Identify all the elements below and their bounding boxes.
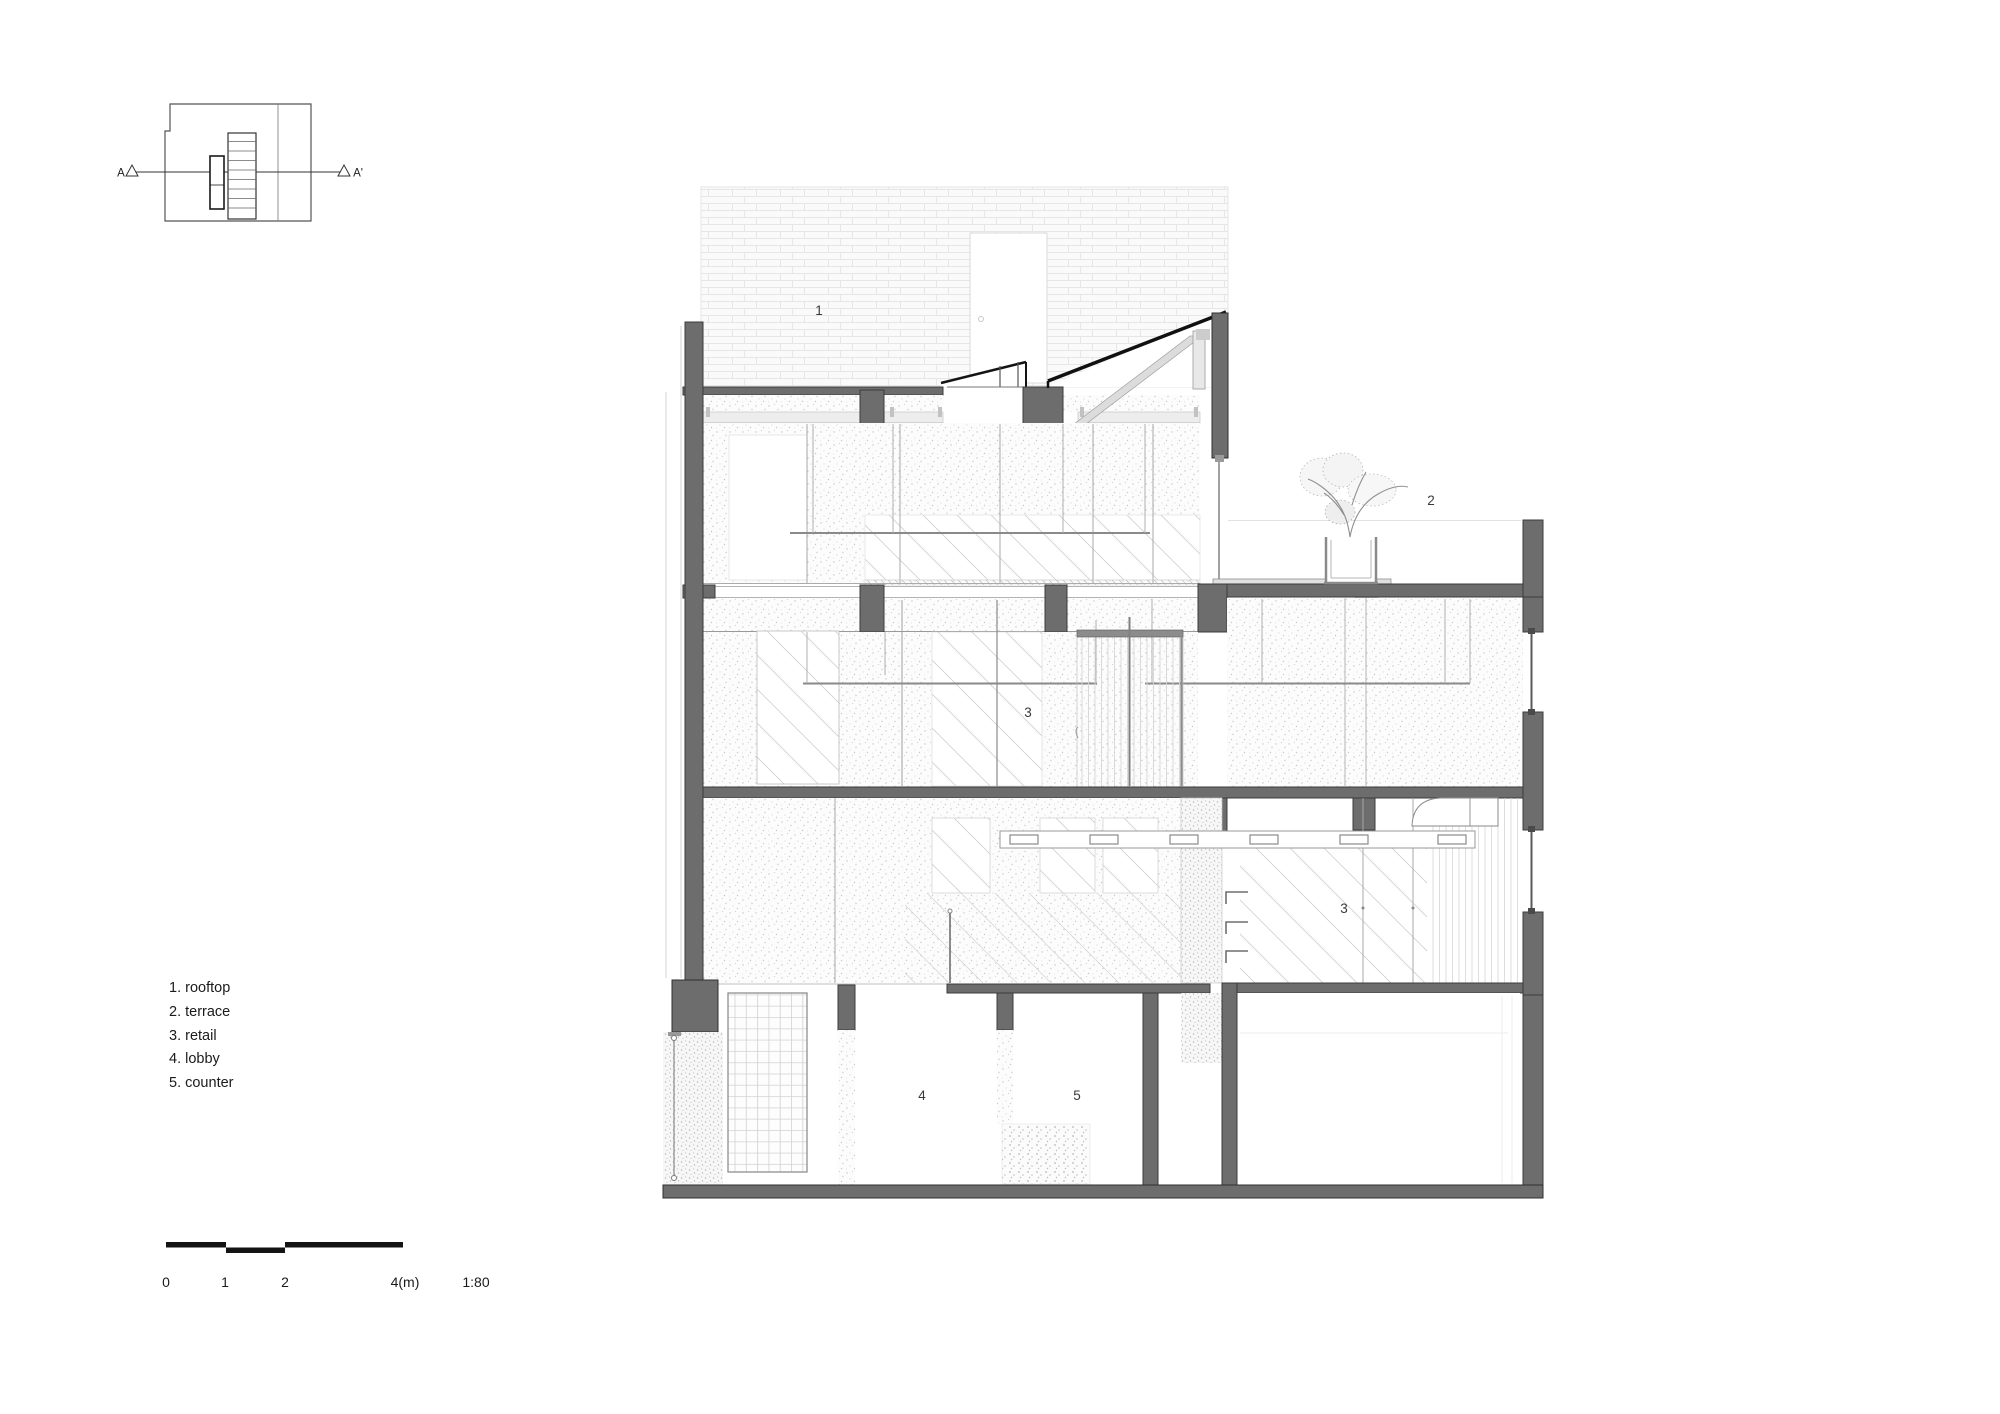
label-counter: 5: [1073, 1088, 1081, 1103]
upper-level: [703, 423, 1200, 585]
ground-slab: [663, 1185, 1543, 1198]
legend-item-lobby: 4. lobby: [169, 1051, 221, 1067]
glass-showcase: [757, 631, 839, 784]
tiled-wall: [728, 993, 807, 1172]
clerestory-band: [683, 585, 1198, 632]
light-fixture-icon: [1170, 835, 1198, 844]
light-fixture-icon: [1438, 835, 1466, 844]
legend-item-terrace: 2. terrace: [169, 1004, 230, 1020]
light-fixture-icon: [1090, 835, 1118, 844]
label-rooftop: 1: [815, 303, 823, 318]
striped-door: [1076, 617, 1183, 787]
ground-level: 4 5: [728, 985, 1222, 1185]
lower-level: 3: [703, 798, 1523, 983]
planter: [1324, 537, 1378, 583]
scale-tick-0: 0: [162, 1274, 170, 1290]
building-section: 2: [663, 187, 1543, 1198]
key-plan: A A': [117, 104, 363, 221]
tree: [1300, 453, 1408, 537]
right-wall: [1523, 597, 1543, 995]
scale-bar: 0 1 2 4(m) 1:80: [162, 1242, 490, 1290]
scale-tick-2: 2: [281, 1274, 289, 1290]
glass-band: [865, 515, 1200, 580]
scale-bar-segment: [285, 1242, 403, 1248]
scale-tick-1: 1: [221, 1274, 229, 1290]
terrace-parapet: [1523, 520, 1543, 597]
rooftop-door: [970, 233, 1047, 383]
legend-item-rooftop: 1. rooftop: [169, 980, 230, 996]
glass-wall: [1240, 847, 1427, 983]
scale-ratio: 1:80: [462, 1274, 489, 1290]
section-marker-triangle-a-prime: [338, 165, 350, 176]
legend-item-counter: 5. counter: [169, 1075, 234, 1091]
key-plan-elevator: [210, 156, 224, 209]
label-lobby: 4: [918, 1088, 926, 1103]
scale-bar-segment: [226, 1248, 285, 1254]
scale-tick-4m: 4(m): [391, 1274, 420, 1290]
lower-right-room: [1222, 983, 1543, 1185]
roof-slab: [683, 387, 943, 395]
terrace-slab: [1198, 584, 1543, 597]
label-retail-upper: 3: [1024, 705, 1032, 720]
rooftop-brick-wall: [701, 187, 1228, 387]
counter-block: [1002, 1124, 1090, 1184]
section-marker-triangle-a: [126, 165, 138, 176]
light-fixture-icon: [1340, 835, 1368, 844]
light-track: [1000, 831, 1475, 848]
legend-item-retail: 3. retail: [169, 1028, 217, 1044]
light-fixture-icon: [1250, 835, 1278, 844]
architectural-section-sheet: A A' 1. rooftop 2. terrace 3. retail 4. …: [0, 0, 2000, 1414]
bench: [1412, 798, 1498, 826]
drawing-sheet: A A' 1. rooftop 2. terrace 3. retail 4. …: [0, 0, 2000, 1414]
key-plan-stair: [228, 133, 256, 219]
left-parapet-wall: [685, 322, 703, 980]
roof-column: [860, 390, 884, 428]
legend: 1. rooftop 2. terrace 3. retail 4. lobby…: [169, 980, 234, 1091]
footing: [672, 980, 718, 1032]
section-marker-label-a: A: [117, 168, 125, 180]
label-terrace: 2: [1427, 493, 1435, 508]
floor-slab-lower: [703, 983, 1523, 993]
light-fixture-icon: [1010, 835, 1038, 844]
roof-end-post: [1212, 313, 1228, 458]
label-retail-lower: 3: [1340, 901, 1348, 916]
section-marker-label-a-prime: A': [353, 168, 363, 180]
scale-bar-segment: [166, 1242, 226, 1248]
